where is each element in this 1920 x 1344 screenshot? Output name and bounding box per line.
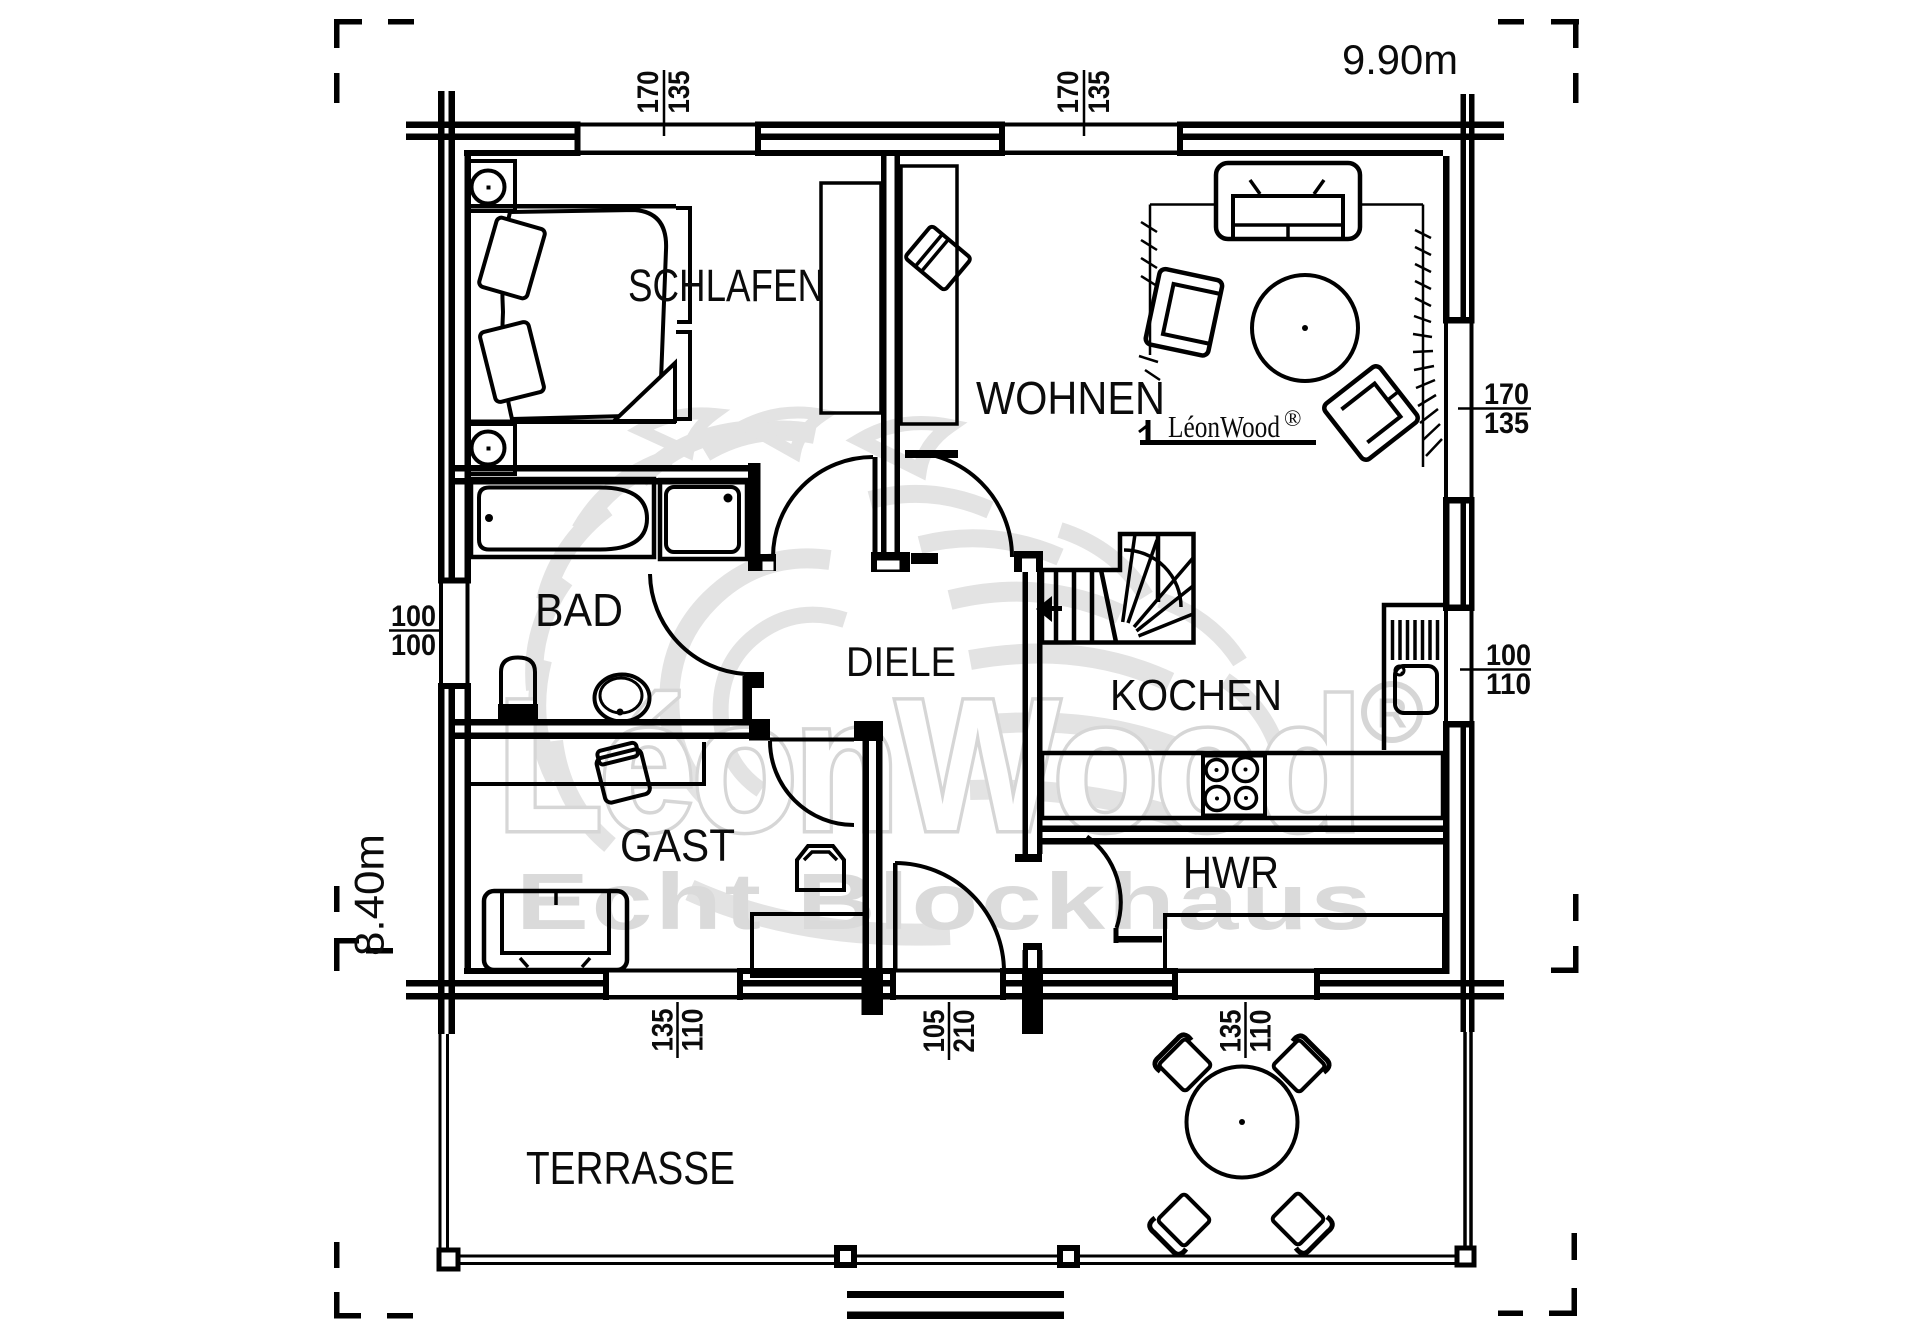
- svg-text:100: 100: [391, 629, 436, 662]
- svg-text:210: 210: [948, 1010, 981, 1053]
- svg-text:135: 135: [1484, 407, 1529, 440]
- svg-text:135: 135: [1083, 71, 1116, 114]
- svg-text:135: 135: [1215, 1010, 1248, 1053]
- svg-text:110: 110: [1486, 668, 1531, 701]
- svg-text:110: 110: [1245, 1010, 1278, 1053]
- svg-text:170: 170: [632, 71, 665, 114]
- svg-text:8.40m: 8.40m: [346, 834, 393, 956]
- svg-text:DIELE: DIELE: [846, 638, 956, 685]
- svg-text:135: 135: [647, 1009, 680, 1052]
- svg-text:105: 105: [918, 1010, 951, 1053]
- svg-text:SCHLAFEN: SCHLAFEN: [628, 260, 824, 311]
- svg-text:135: 135: [663, 71, 696, 114]
- svg-text:9.90m: 9.90m: [1342, 36, 1458, 83]
- svg-text:LéonWood: LéonWood: [1168, 409, 1280, 444]
- svg-text:KOCHEN: KOCHEN: [1110, 671, 1282, 720]
- svg-text:®: ®: [1284, 406, 1301, 431]
- svg-text:BAD: BAD: [535, 584, 623, 636]
- svg-text:HWR: HWR: [1183, 847, 1279, 898]
- svg-text:WOHNEN: WOHNEN: [976, 372, 1165, 424]
- svg-text:TERRASSE: TERRASSE: [526, 1142, 735, 1194]
- svg-text:110: 110: [677, 1009, 710, 1052]
- svg-text:170: 170: [1052, 71, 1085, 114]
- svg-text:GAST: GAST: [620, 820, 735, 871]
